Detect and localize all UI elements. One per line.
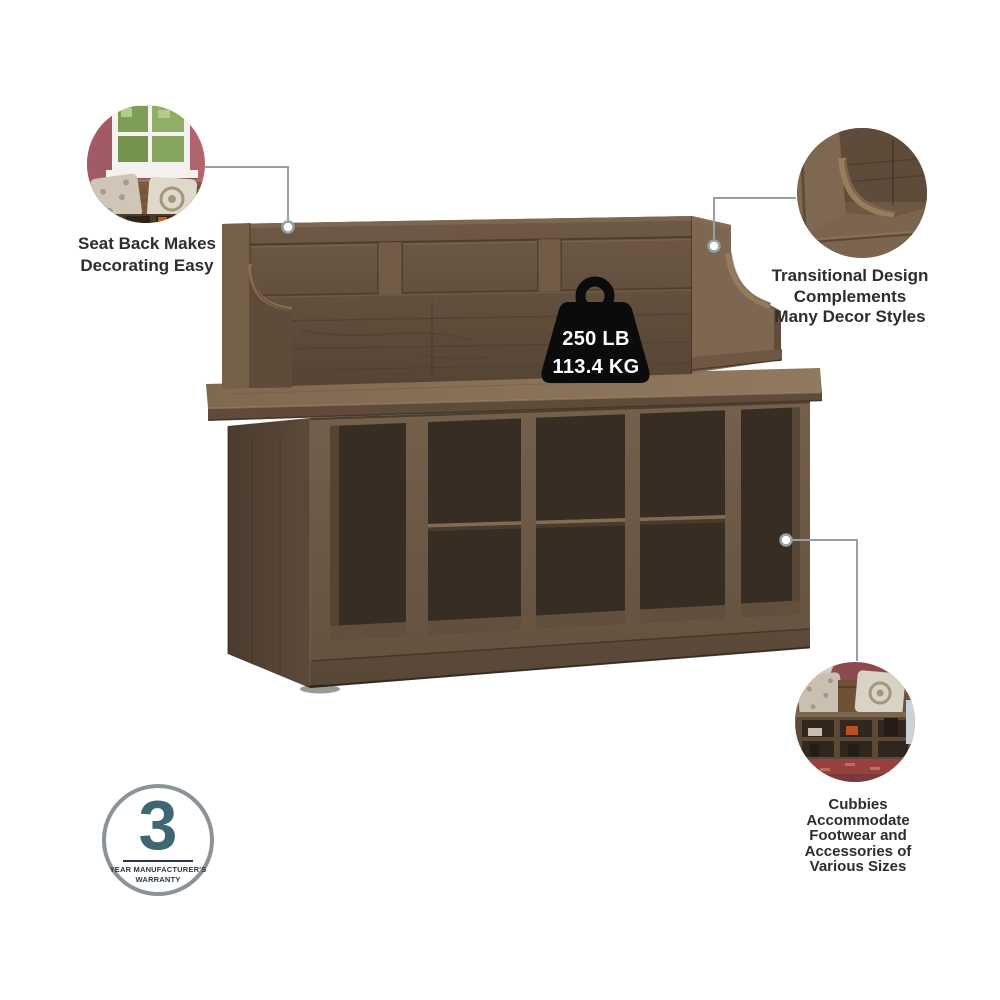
weight-kilograms: 113.4 KG <box>521 353 671 381</box>
inset3-pillow-left <box>796 672 844 718</box>
callout-line: Many Decor Styles <box>745 307 955 328</box>
warranty-years: 3 <box>139 794 178 856</box>
warranty-divider <box>123 860 193 862</box>
product-infographic: Seat Back Makes Decorating Easy Transiti… <box>0 0 1000 1000</box>
callout-line: Decorating Easy <box>42 255 252 277</box>
inset-photo-seat-back <box>76 100 205 226</box>
callout-line: Various Sizes <box>763 859 953 875</box>
callout-line: Cubbies <box>763 797 953 813</box>
callout-line: Transitional Design <box>745 266 955 287</box>
storage-base <box>228 401 810 694</box>
callout-seat-back: Seat Back Makes Decorating Easy <box>42 233 252 276</box>
inset3-pillow-right <box>854 670 905 716</box>
warranty-caption-line2: WARRANTY <box>136 875 181 885</box>
leader-line-seat-back <box>205 167 288 220</box>
warranty-badge: 3 YEAR MANUFACTURER'S WARRANTY <box>102 784 214 896</box>
callout-line: Complements <box>745 287 955 308</box>
callout-cubbies: Cubbies Accommodate Footwear and Accesso… <box>763 797 953 875</box>
callout-line: Seat Back Makes <box>42 233 252 255</box>
callout-marker-dot <box>709 241 720 252</box>
callout-line: Accommodate <box>763 813 953 829</box>
inset-photo-cubbies <box>790 662 920 784</box>
weight-capacity-label: 250 LB 113.4 KG <box>521 325 671 381</box>
weight-pounds: 250 LB <box>521 325 671 353</box>
callout-line: Footwear and <box>763 828 953 844</box>
callout-marker-dot <box>781 535 792 546</box>
warranty-caption-line1: YEAR MANUFACTURER'S <box>110 865 207 875</box>
callout-line: Accessories of <box>763 844 953 860</box>
callout-transitional-design: Transitional Design Complements Many Dec… <box>745 266 955 328</box>
inset-photo-corner-detail <box>786 110 929 264</box>
callout-marker-dot <box>283 222 294 233</box>
